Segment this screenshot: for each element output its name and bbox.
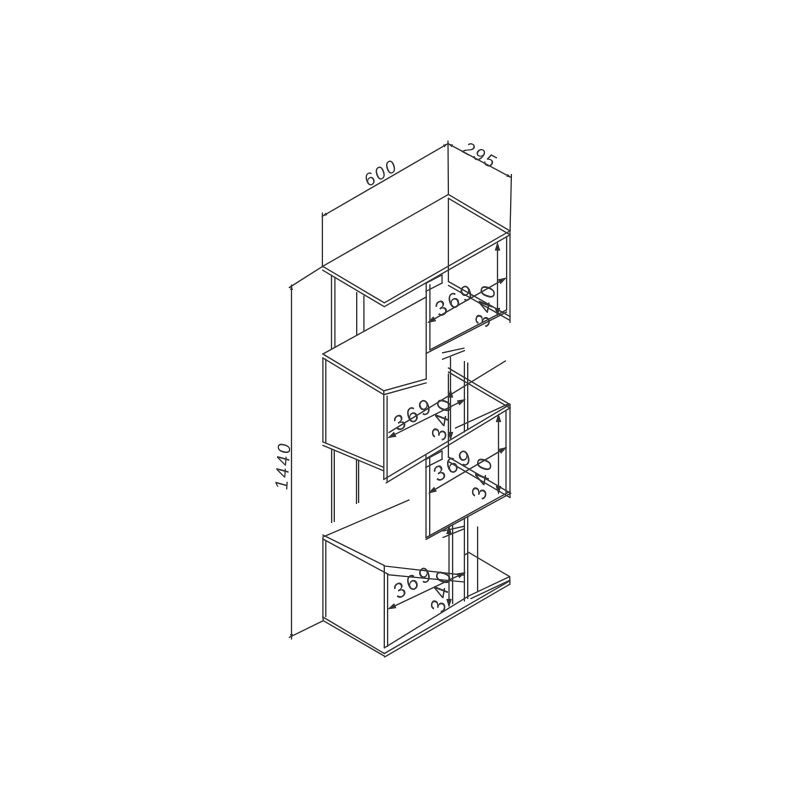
svg-text:1440: 1440 [271, 441, 294, 490]
